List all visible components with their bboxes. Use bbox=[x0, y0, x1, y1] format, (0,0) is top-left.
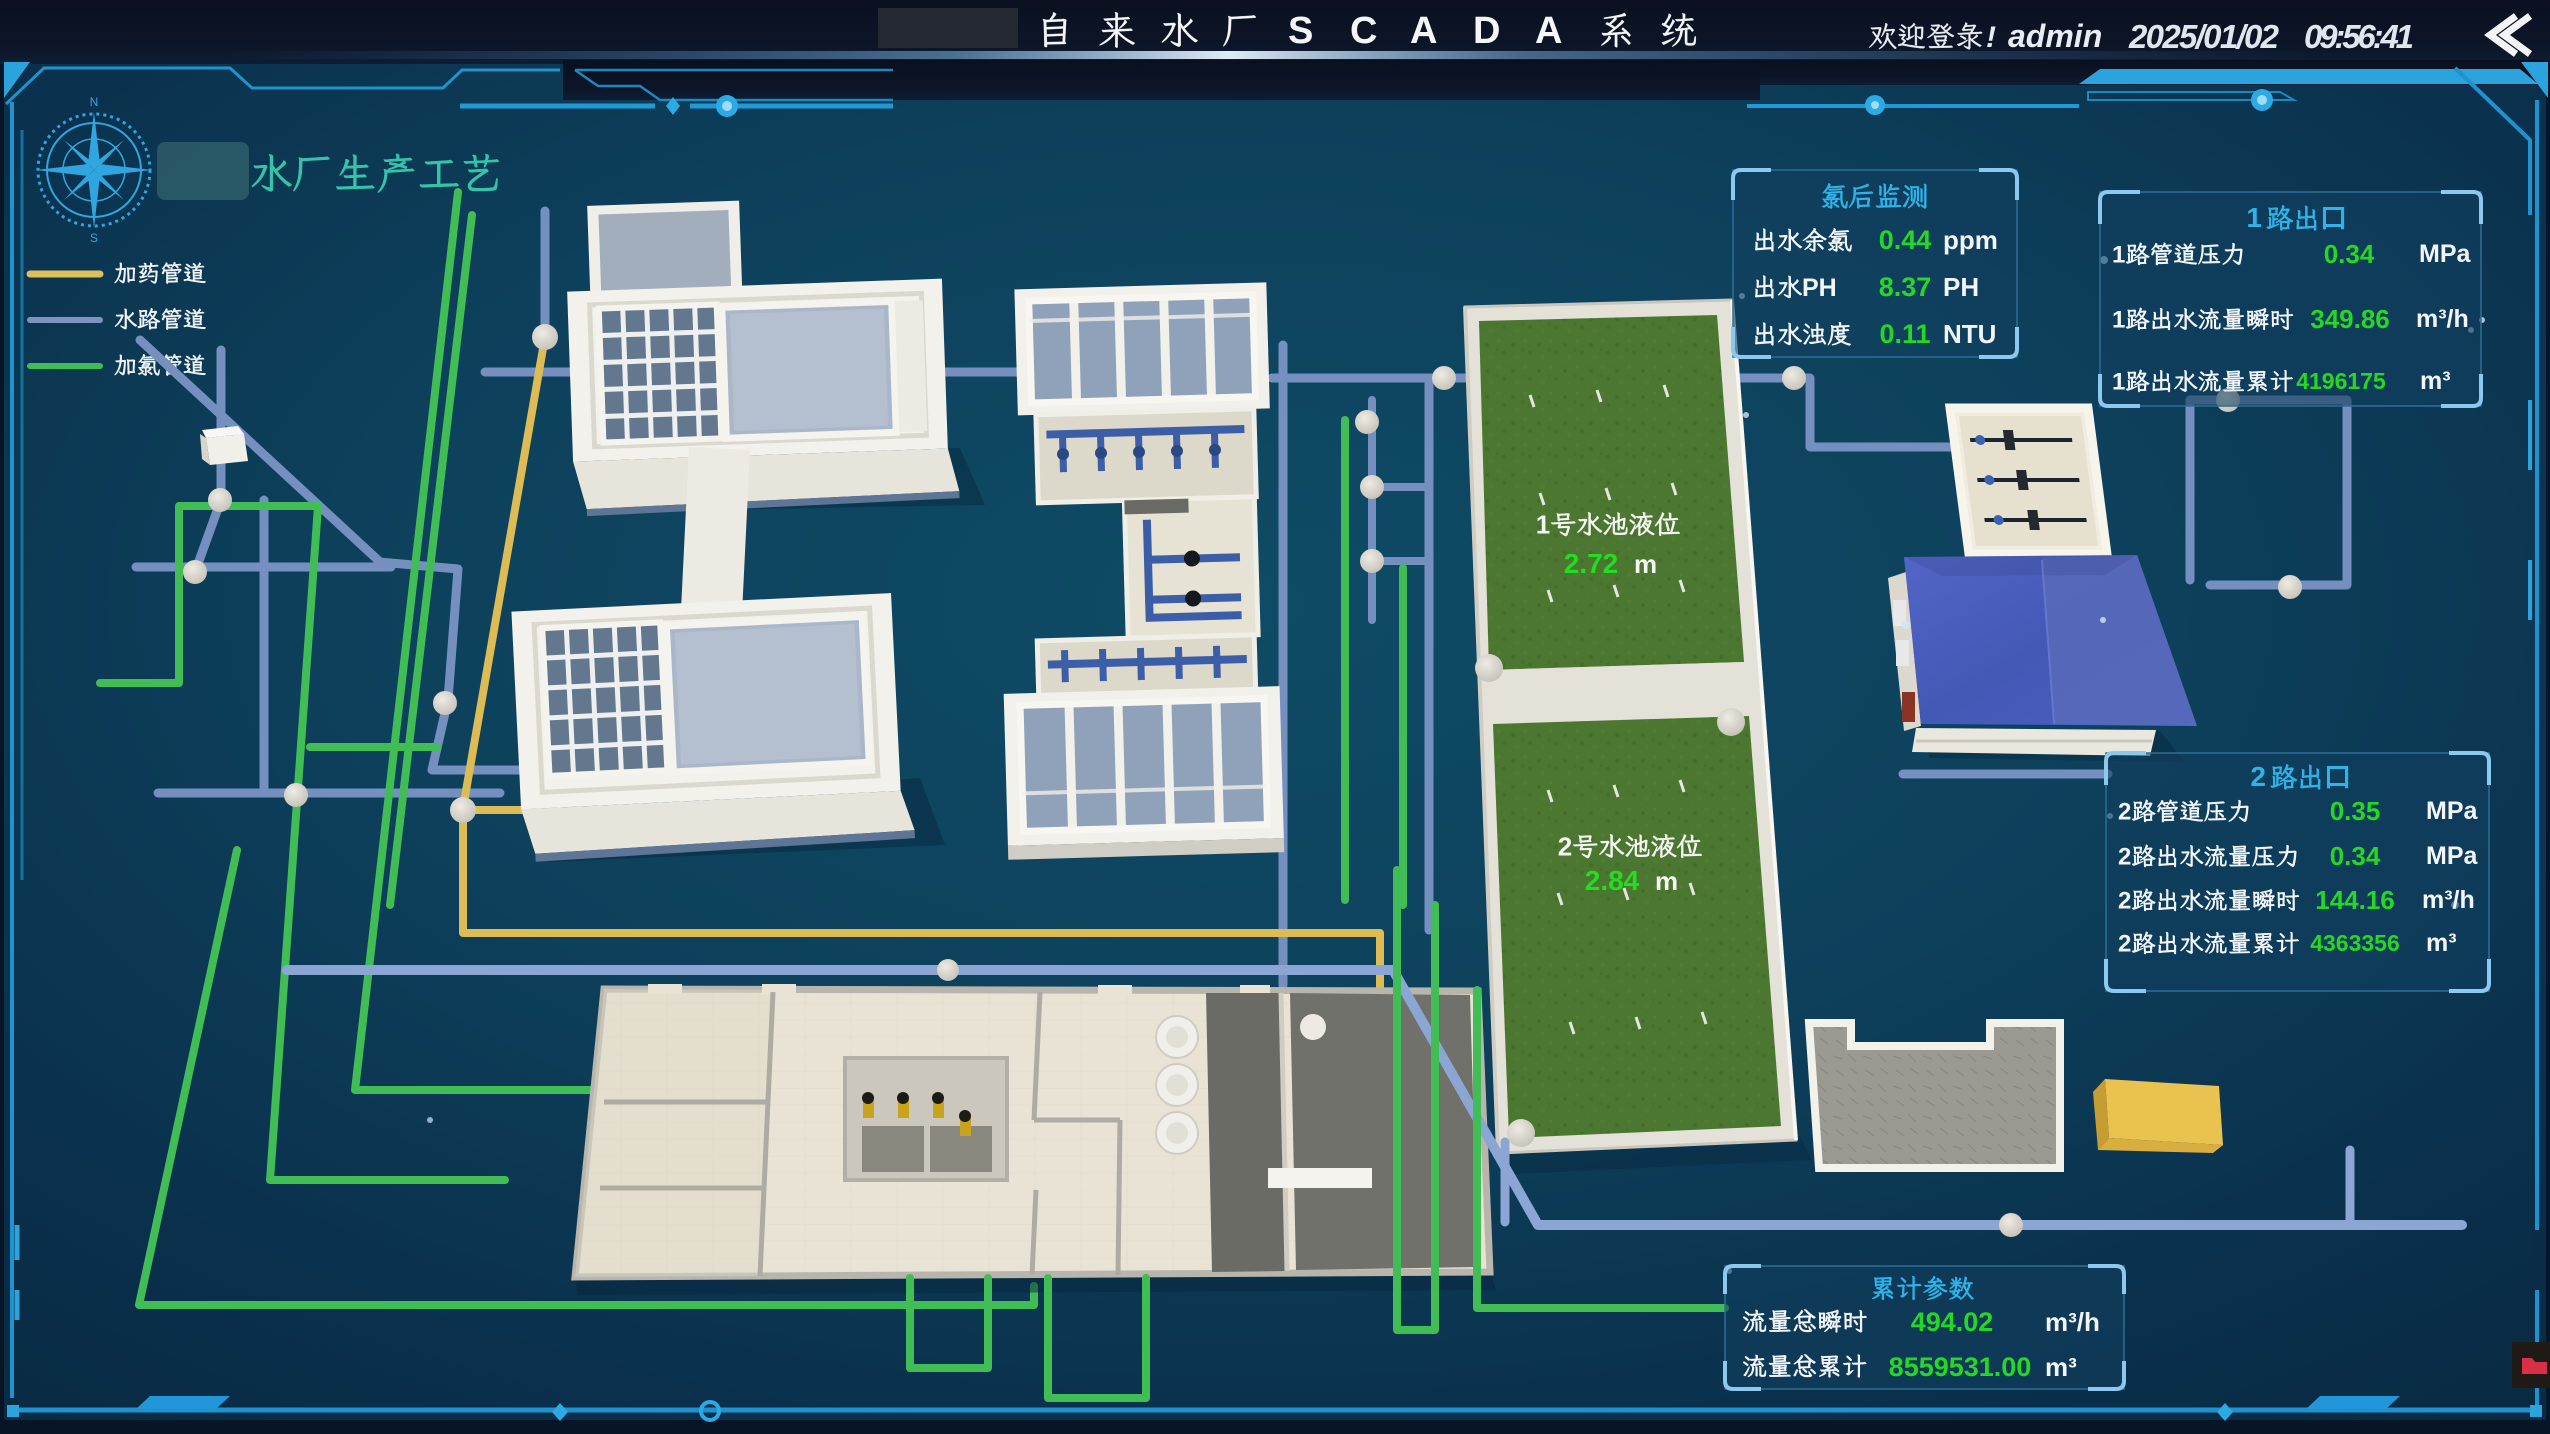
svg-text:A: A bbox=[1535, 10, 1562, 52]
svg-text:A: A bbox=[1410, 10, 1437, 52]
svg-text:MPa: MPa bbox=[2419, 240, 2472, 268]
svg-text:PH: PH bbox=[1802, 274, 1837, 302]
svg-text:MPa: MPa bbox=[2426, 797, 2479, 825]
svg-text:1: 1 bbox=[2112, 242, 2125, 269]
svg-text:2: 2 bbox=[2250, 761, 2266, 792]
svg-text:2: 2 bbox=[2118, 799, 2131, 826]
svg-text:8559531.00: 8559531.00 bbox=[1889, 1352, 2032, 1382]
svg-text:m³: m³ bbox=[2426, 929, 2457, 957]
svg-text:0.35: 0.35 bbox=[2330, 796, 2381, 826]
svg-text:349.86: 349.86 bbox=[2310, 304, 2390, 334]
svg-text:m: m bbox=[1634, 549, 1657, 579]
svg-text:4363356: 4363356 bbox=[2310, 930, 2400, 956]
svg-text:1: 1 bbox=[2112, 307, 2125, 334]
svg-text:0.34: 0.34 bbox=[2330, 841, 2381, 871]
svg-text:N: N bbox=[90, 95, 99, 109]
svg-text:NTU: NTU bbox=[1943, 319, 1996, 349]
svg-text:S: S bbox=[1288, 10, 1313, 52]
svg-text:D: D bbox=[1473, 10, 1500, 52]
svg-text:admin: admin bbox=[2008, 18, 2102, 54]
svg-text:1: 1 bbox=[1536, 509, 1550, 539]
svg-text:MPa: MPa bbox=[2426, 842, 2479, 870]
svg-text:m³/h: m³/h bbox=[2422, 886, 2475, 914]
svg-text:C: C bbox=[1350, 10, 1377, 52]
svg-text:m³/h: m³/h bbox=[2045, 1307, 2100, 1337]
svg-text:2.72: 2.72 bbox=[1564, 548, 1619, 579]
svg-text:2.84: 2.84 bbox=[1585, 865, 1640, 896]
svg-text:ppm: ppm bbox=[1943, 225, 1998, 255]
svg-text:09:56:41: 09:56:41 bbox=[2304, 18, 2414, 55]
svg-text:1: 1 bbox=[2246, 202, 2262, 233]
svg-text:4196175: 4196175 bbox=[2296, 368, 2386, 394]
svg-text:m³: m³ bbox=[2045, 1352, 2077, 1382]
svg-text:2: 2 bbox=[2118, 888, 2131, 915]
svg-text:!: ! bbox=[1986, 21, 1996, 54]
svg-text:0.11: 0.11 bbox=[1879, 319, 1930, 349]
svg-text:m³/h: m³/h bbox=[2416, 305, 2469, 333]
svg-text:口: 口 bbox=[2320, 204, 2347, 234]
svg-text:2: 2 bbox=[1558, 831, 1572, 861]
svg-text:0.34: 0.34 bbox=[2324, 239, 2375, 269]
svg-text:0.44: 0.44 bbox=[1879, 225, 1932, 255]
svg-text:1: 1 bbox=[2112, 369, 2125, 396]
svg-text:2025/01/02: 2025/01/02 bbox=[2128, 18, 2280, 55]
svg-text:m: m bbox=[1655, 866, 1678, 896]
svg-text:2: 2 bbox=[2118, 844, 2131, 871]
svg-text:S: S bbox=[90, 231, 98, 245]
svg-text:144.16: 144.16 bbox=[2315, 885, 2395, 915]
svg-text:8.37: 8.37 bbox=[1879, 272, 1932, 302]
svg-text:口: 口 bbox=[2324, 763, 2351, 793]
svg-text:2: 2 bbox=[2118, 931, 2131, 958]
svg-text:PH: PH bbox=[1943, 272, 1979, 302]
svg-text:494.02: 494.02 bbox=[1911, 1307, 1994, 1337]
svg-text:m³: m³ bbox=[2420, 367, 2451, 395]
